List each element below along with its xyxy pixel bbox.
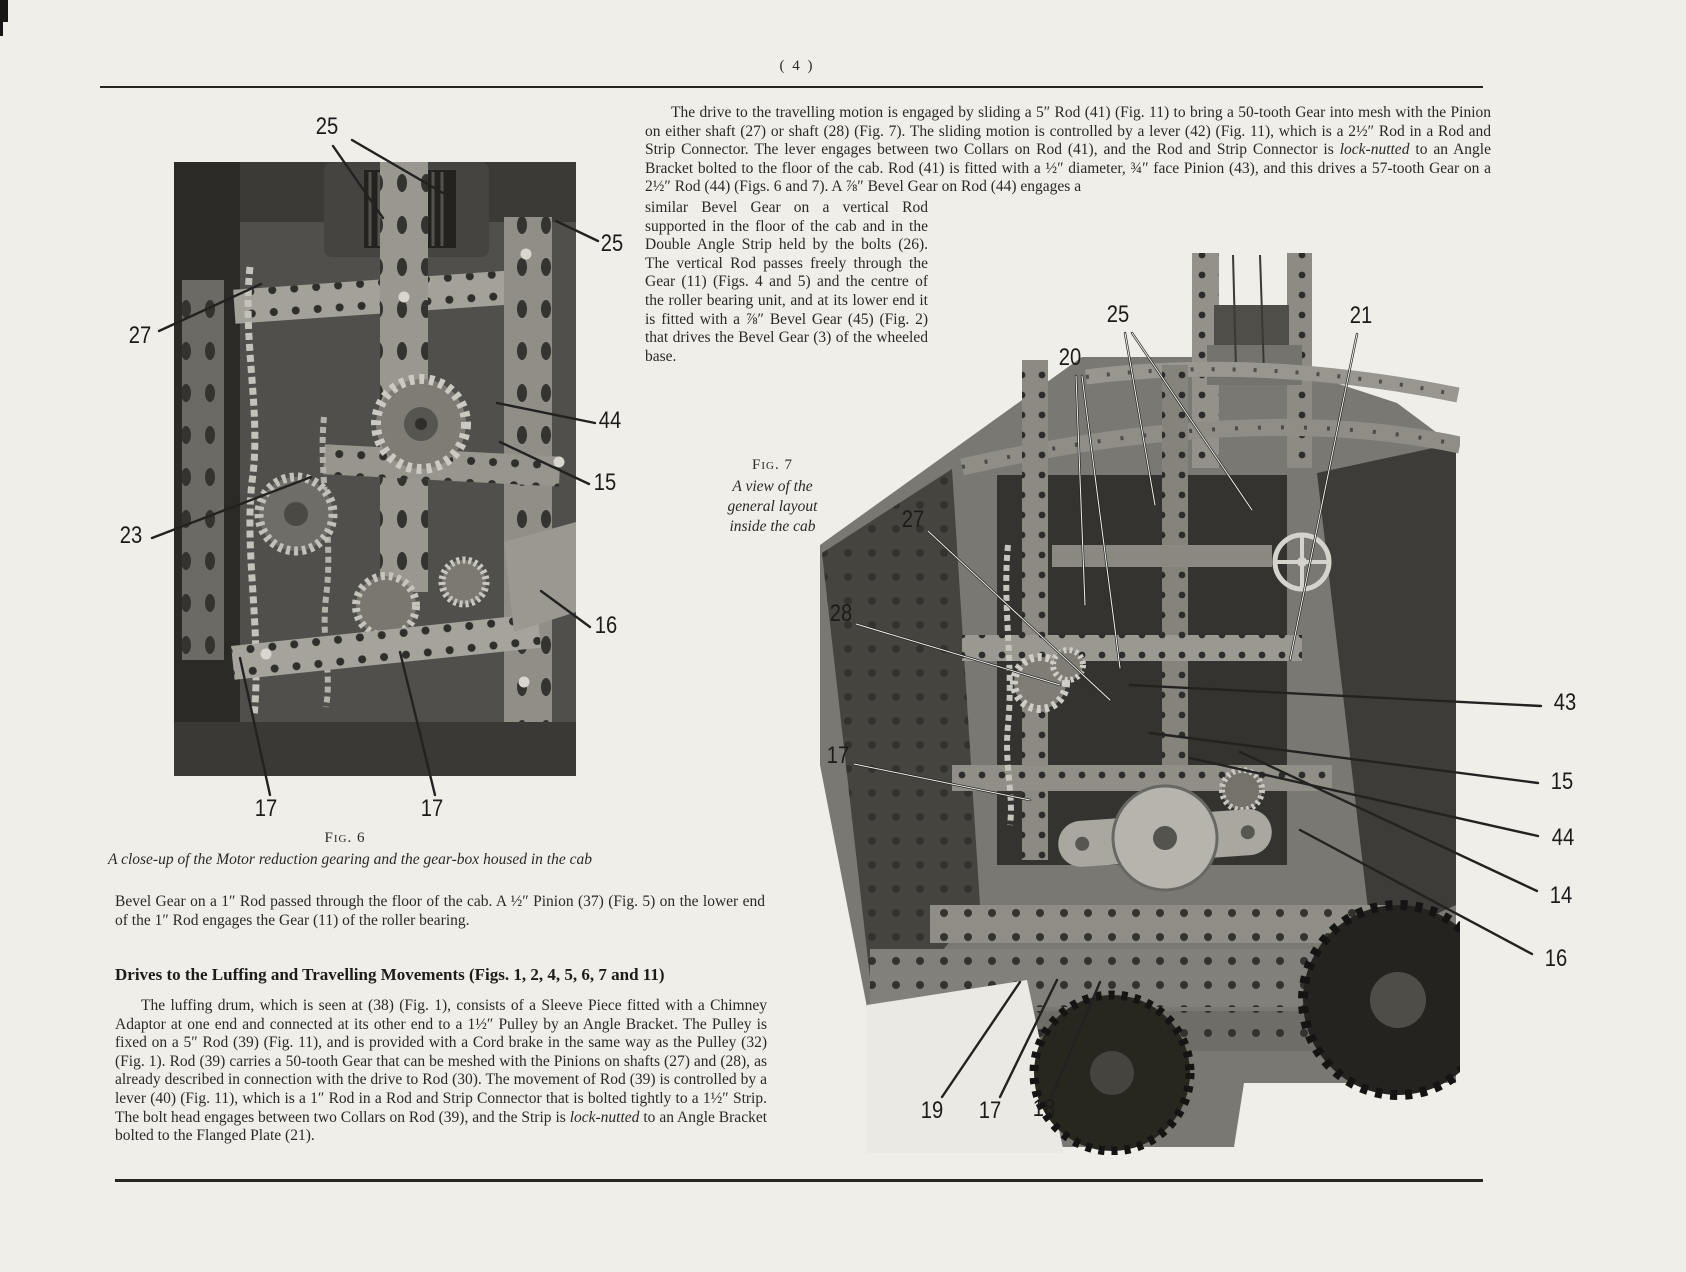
bottom-rule (115, 1179, 1483, 1182)
callout-fig6-27: 27 (129, 322, 151, 350)
callout-fig7-17: 17 (827, 742, 849, 770)
fig6-photo (174, 162, 576, 776)
fig7-label: Fig. 7 (690, 457, 855, 474)
callout-fig7-27: 27 (902, 506, 924, 534)
manual-page: ( 4 ) (0, 0, 1686, 1272)
fig7-caption: A view of the general layout inside the … (690, 477, 855, 537)
callout-fig7-28: 28 (830, 600, 852, 628)
callout-fig7-44: 44 (1552, 824, 1574, 852)
callout-fig7-19: 19 (921, 1097, 943, 1125)
fig7-caption-line: A view of the (690, 477, 855, 497)
callout-fig7-15: 15 (1551, 768, 1573, 796)
top-rule (100, 86, 1483, 88)
callout-fig7-18: 18 (1033, 1095, 1055, 1123)
callout-fig6-16: 16 (595, 612, 617, 640)
para-luffing-drum: The luffing drum, which is seen at (38) … (115, 997, 767, 1146)
callout-fig6-17: 17 (421, 795, 443, 823)
callout-fig7-16: 16 (1545, 945, 1567, 973)
callout-fig7-14: 14 (1550, 882, 1572, 910)
para-bevel-gear: Bevel Gear on a 1″ Rod passed through th… (115, 893, 765, 930)
callout-fig6-23: 23 (120, 522, 142, 550)
callout-fig6-25: 25 (316, 113, 338, 141)
callout-fig7-25: 25 (1107, 301, 1129, 329)
callout-fig6-44: 44 (599, 407, 621, 435)
section-heading: Drives to the Luffing and Travelling Mov… (115, 965, 775, 985)
callout-fig7-20: 20 (1059, 344, 1081, 372)
page-number: ( 4 ) (762, 58, 832, 75)
callout-fig6-15: 15 (594, 469, 616, 497)
fig6-caption: A close-up of the Motor reduction gearin… (100, 850, 600, 870)
fig7-caption-line: general layout (690, 497, 855, 517)
callout-fig7-21: 21 (1350, 302, 1372, 330)
callout-fig7-17: 17 (979, 1097, 1001, 1125)
callout-fig6-25: 25 (601, 230, 623, 258)
fig6-photo-art (174, 162, 576, 776)
callout-fig6-17: 17 (255, 795, 277, 823)
callout-fig7-43: 43 (1554, 689, 1576, 717)
fig6-label: Fig. 6 (110, 830, 580, 847)
para-travelling-narrow: similar Bevel Gear on a vertical Rod sup… (645, 199, 928, 366)
fig7-caption-line: inside the cab (690, 517, 855, 537)
para-travelling-wide: The drive to the travelling motion is en… (645, 104, 1491, 197)
